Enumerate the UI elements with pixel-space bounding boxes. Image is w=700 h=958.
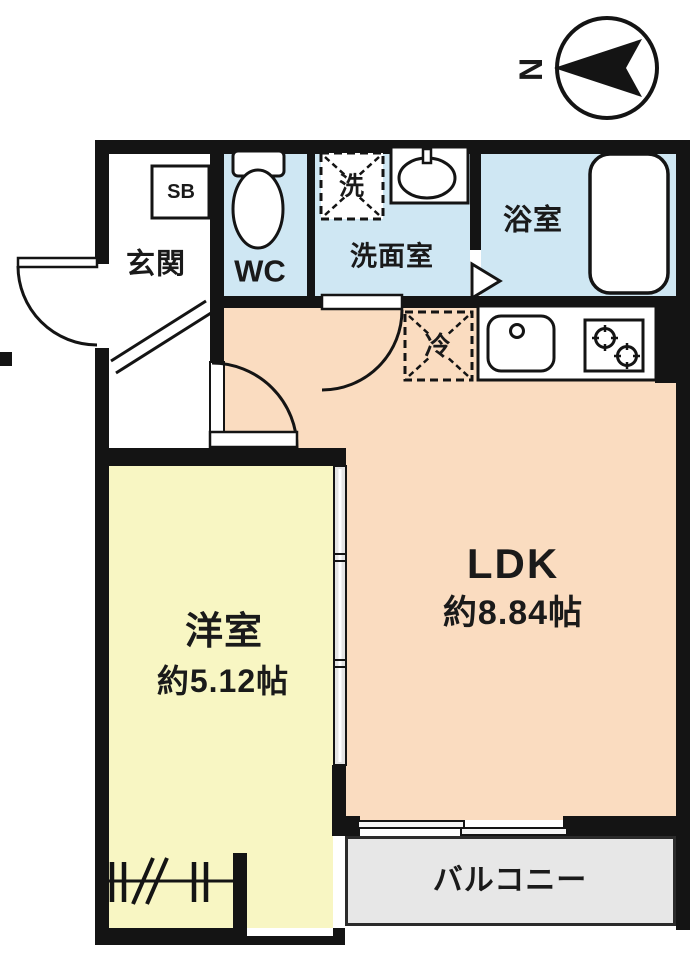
wall-south-left bbox=[332, 816, 360, 836]
wall-bedroom-north bbox=[95, 448, 346, 466]
label-ldk-name: LDK bbox=[467, 543, 559, 585]
wall-top bbox=[95, 140, 690, 154]
wet-rooms-floor bbox=[224, 154, 676, 296]
wall-left-lower bbox=[95, 348, 109, 945]
bottom-window-gap bbox=[247, 928, 333, 936]
entrance-doorway-gap bbox=[95, 264, 109, 348]
wall-genkan-wc bbox=[210, 154, 224, 362]
label-north: N bbox=[515, 57, 547, 81]
wall-bottom-stub bbox=[233, 853, 247, 943]
label-balcony: バルコニー bbox=[433, 866, 587, 896]
entrance-door-swing-icon bbox=[18, 258, 97, 345]
label-washer: 洗 bbox=[339, 175, 365, 200]
label-wc: WC bbox=[234, 256, 286, 287]
label-bedroom-name: 洋室 bbox=[185, 613, 263, 651]
label-fridge: 冷 bbox=[424, 333, 451, 359]
wall-under-wetrooms-right bbox=[402, 296, 676, 308]
wall-south-right bbox=[563, 816, 676, 836]
ldk-doorway-gap bbox=[209, 361, 225, 448]
wall-left-edge-dash bbox=[0, 352, 12, 366]
wall-under-wetrooms-left bbox=[224, 296, 322, 308]
wall-right bbox=[676, 140, 690, 930]
balcony-sliding-window-icon bbox=[358, 821, 567, 835]
floor-plan: N 玄関 SB WC 洗 洗面室 浴室 冷 LDK 約8.84帖 洋室 約5.1… bbox=[0, 0, 700, 958]
wall-left-upper bbox=[95, 140, 109, 264]
compass-icon bbox=[554, 18, 657, 118]
wall-wc-senmen bbox=[307, 154, 315, 296]
label-shoe-box: SB bbox=[167, 182, 195, 202]
wall-kitchen-east bbox=[655, 305, 676, 383]
label-bath: 浴室 bbox=[503, 207, 563, 236]
wall-senmen-bath bbox=[470, 154, 481, 250]
bath-doorway-gap bbox=[470, 250, 481, 296]
label-bedroom-size: 約5.12帖 bbox=[157, 665, 289, 697]
label-genkan: 玄関 bbox=[126, 251, 186, 280]
label-senmen: 洗面室 bbox=[350, 244, 434, 271]
label-ldk-size: 約8.84帖 bbox=[443, 596, 583, 630]
